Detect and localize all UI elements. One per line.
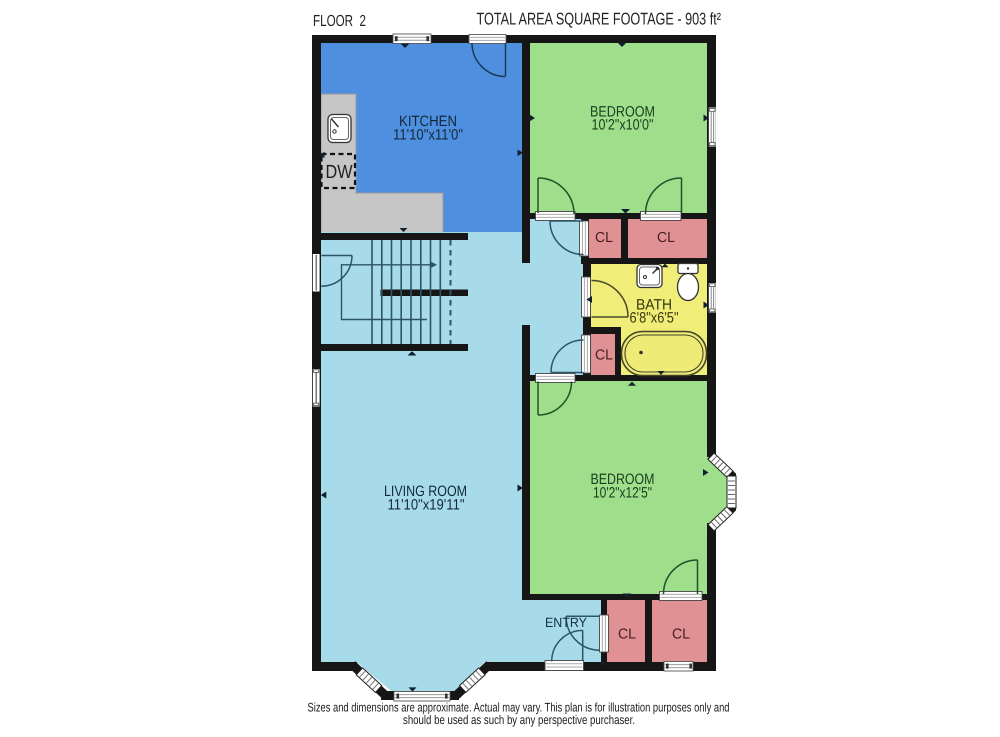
- svg-text:FLOOR 2: FLOOR 2: [313, 13, 366, 30]
- svg-text:CL: CL: [595, 230, 613, 246]
- svg-text:CL: CL: [657, 230, 675, 246]
- svg-text:11'10"x19'11": 11'10"x19'11": [388, 497, 465, 514]
- svg-text:CL: CL: [595, 348, 613, 364]
- svg-text:10'2"x10'0": 10'2"x10'0": [592, 117, 654, 134]
- svg-text:CL: CL: [618, 627, 636, 643]
- svg-text:TOTAL AREA SQUARE FOOTAGE - 90: TOTAL AREA SQUARE FOOTAGE - 903 ft²: [477, 10, 722, 29]
- svg-text:CL: CL: [672, 627, 690, 643]
- svg-text:ENTRY: ENTRY: [545, 615, 587, 630]
- svg-text:6'8"x6'5": 6'8"x6'5": [630, 310, 679, 327]
- svg-text:should be used as such by any: should be used as such by any perspectiv…: [403, 713, 635, 727]
- svg-text:DW: DW: [326, 162, 353, 183]
- svg-text:11'10"x11'0": 11'10"x11'0": [393, 127, 463, 144]
- svg-text:10'2"x12'5": 10'2"x12'5": [593, 485, 652, 502]
